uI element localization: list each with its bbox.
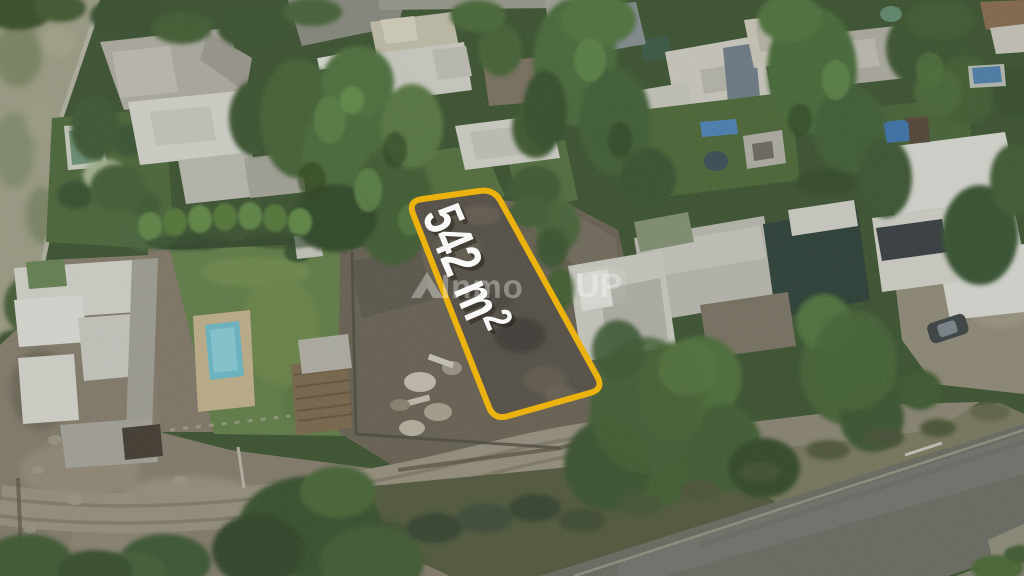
- svg-text:Inmo: Inmo: [441, 268, 524, 305]
- svg-text:UP: UP: [575, 267, 622, 305]
